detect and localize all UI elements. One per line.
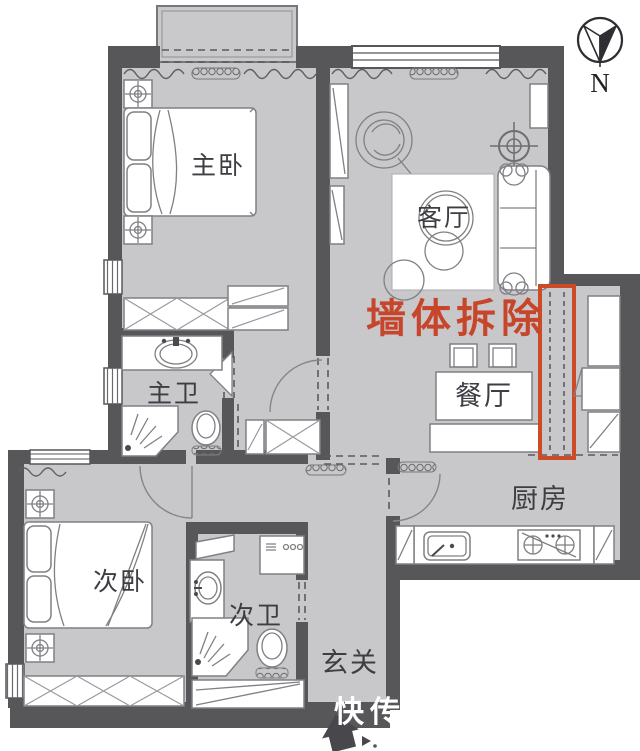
wardrobe-icon: [24, 676, 184, 706]
toilet-icon: [256, 629, 288, 678]
dining-chair-icon: [450, 344, 477, 367]
kitchen-sink-icon: [424, 532, 470, 560]
shoe-cabinet-icon: [246, 420, 320, 454]
dining-chair-icon: [489, 344, 516, 367]
living-room-window: [352, 46, 500, 68]
washing-machine-icon: [260, 536, 304, 574]
label-second-bath: 次卫: [229, 602, 283, 630]
label-entry: 玄关: [321, 648, 379, 678]
floor-plan: 主卧: [0, 0, 640, 751]
compass: N: [578, 18, 622, 98]
dresser-icon: [228, 286, 288, 330]
nightstand-icon: [124, 80, 152, 108]
label-kitchen: 厨房: [511, 484, 569, 514]
label-dining-room: 餐厅: [455, 381, 513, 411]
nightstand-icon: [26, 490, 54, 518]
bay-window: [157, 6, 297, 62]
stove-icon: [518, 530, 580, 560]
second-bedroom-window: [30, 450, 90, 464]
sofa-icon: [498, 163, 550, 295]
compass-north-label: N: [590, 68, 610, 98]
slider-symbol: [306, 465, 346, 475]
arrow-pointer-icon: [362, 736, 371, 746]
shelf-icon: [530, 84, 548, 128]
nightstand-icon: [124, 216, 152, 244]
label-master-bedroom: 主卧: [191, 152, 245, 180]
wardrobe-icon: [124, 298, 230, 330]
toilet-icon: [192, 411, 221, 455]
label-living-room: 客厅: [417, 204, 471, 232]
sink-icon: [194, 572, 221, 604]
slider-symbol-2: [398, 462, 436, 472]
nightstand-icon: [26, 634, 54, 662]
label-master-bath: 主卫: [147, 380, 201, 408]
dining-bench-icon: [430, 424, 540, 452]
label-wall-demolition: 墙体拆除: [366, 297, 546, 341]
watermark-text: 快传号: [334, 696, 442, 729]
sink-icon: [122, 336, 222, 370]
label-second-bedroom: 次卧: [93, 568, 147, 596]
bathtub-icon: [192, 680, 304, 708]
